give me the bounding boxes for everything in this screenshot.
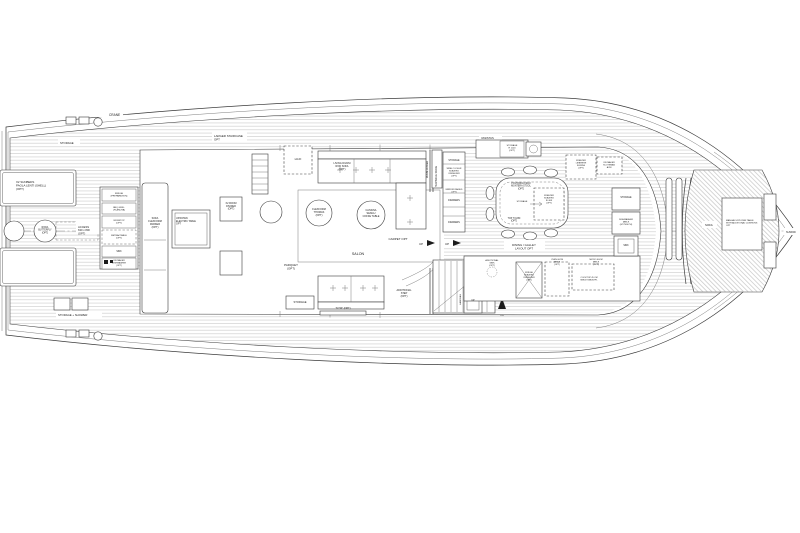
crane-base-2 [79,117,89,124]
plan-label-technical-space: TECHNICAL SPACE [435,165,438,187]
plan-label-handrail: HANDRAIL [459,293,462,305]
plan-label-hifi: HI-FI [295,157,302,161]
oven-box [545,262,569,296]
montera-stool-6 [545,229,558,237]
stbd-storage-box [612,188,640,210]
foredeck-slat-1 [666,178,672,260]
bow-locker-1 [764,194,776,220]
stern-storage-box-2 [72,298,88,310]
aft-locker-2 [79,330,89,337]
foredeck-slat-2 [676,178,682,260]
plan-label-storage-stbd: STORAGE [620,196,632,199]
plan-label-storage-salon: STORAGE [293,300,306,304]
montera-stool-2 [524,166,537,174]
sunbed-stbd-cushion [3,251,74,284]
yacht-deck-plan: CRANESTORAGEX2 SUNBEDSPAOLA LENTI (SHELL… [0,0,800,533]
aft-galley-control-1 [104,260,108,264]
plan-label-sink-stbd: SINK [623,245,629,247]
stern-storage-box-1 [54,298,70,310]
plan-label-vasistas: VASISTAS [481,136,494,140]
plan-label-dn: DN [500,315,504,317]
appliance-box [526,142,541,156]
plan-label-sofa-bow: SOFA [705,223,713,227]
plan-label-sink-aft: SINK [116,251,122,253]
plan-label-crane: CRANE [109,113,120,117]
sofa-flexform-parker [142,183,168,313]
rod-sofa-back [318,151,426,159]
plan-label-drawers-2: DRAWERS [448,221,460,224]
plan-label-tv: TV 50" (OPT) [335,307,350,310]
plan-label-up-2: UP [445,242,449,246]
plan-label-room-divider-wall: ROOM DIVIDER [427,161,429,178]
montera-stool-1 [502,168,515,176]
plan-label-storage-shower: STORAGE + SHOWER [58,313,87,317]
plan-label-storage-cabinet: STORAGE [448,159,460,162]
room-divider-unit-2 [220,251,242,275]
plan-label-salon: SALON [352,252,365,256]
thomas-chair-1 [260,201,282,223]
bow-locker-2 [764,242,776,268]
aft-locker-1 [66,330,76,337]
montera-stool-8 [486,208,494,221]
plan-label-cooktop: COOKTOP 45 CMMIELE KM6357FL [580,277,598,281]
plan-label-up-lift: UP [471,300,475,302]
plan-label-up-1: UP [419,242,423,246]
deck-plan-svg: CRANESTORAGEX2 SUNBEDSPAOLA LENTI (SHELL… [0,0,800,533]
tv-sofa-back [318,302,384,309]
plan-label-storage-table: STORAGE [517,200,528,203]
plan-label-carpet: CARPET OPT [388,237,407,241]
montera-stool-3 [545,169,558,177]
montera-stool-4 [502,230,515,238]
crane-post [94,118,102,126]
plan-label-bbq-grill: BBQ GRILL(PLANCHA) [113,207,125,212]
plan-label-sunpad: SUNPAD [786,231,796,234]
plan-label-storage-aft-top: STORAGE [60,141,74,145]
plan-label-drawers-1: DRAWERS [448,199,460,202]
montera-stool-7 [486,187,494,200]
tv-cabinet [320,311,366,315]
montera-stool-5 [524,232,537,240]
side-table [4,221,24,241]
plan-label-dining-galley: DINING / GALLEYLAYOUT OPT [512,243,536,250]
aft-post [94,332,102,340]
crane-base-1 [66,117,76,124]
sunbed-port-cushion [3,173,74,204]
